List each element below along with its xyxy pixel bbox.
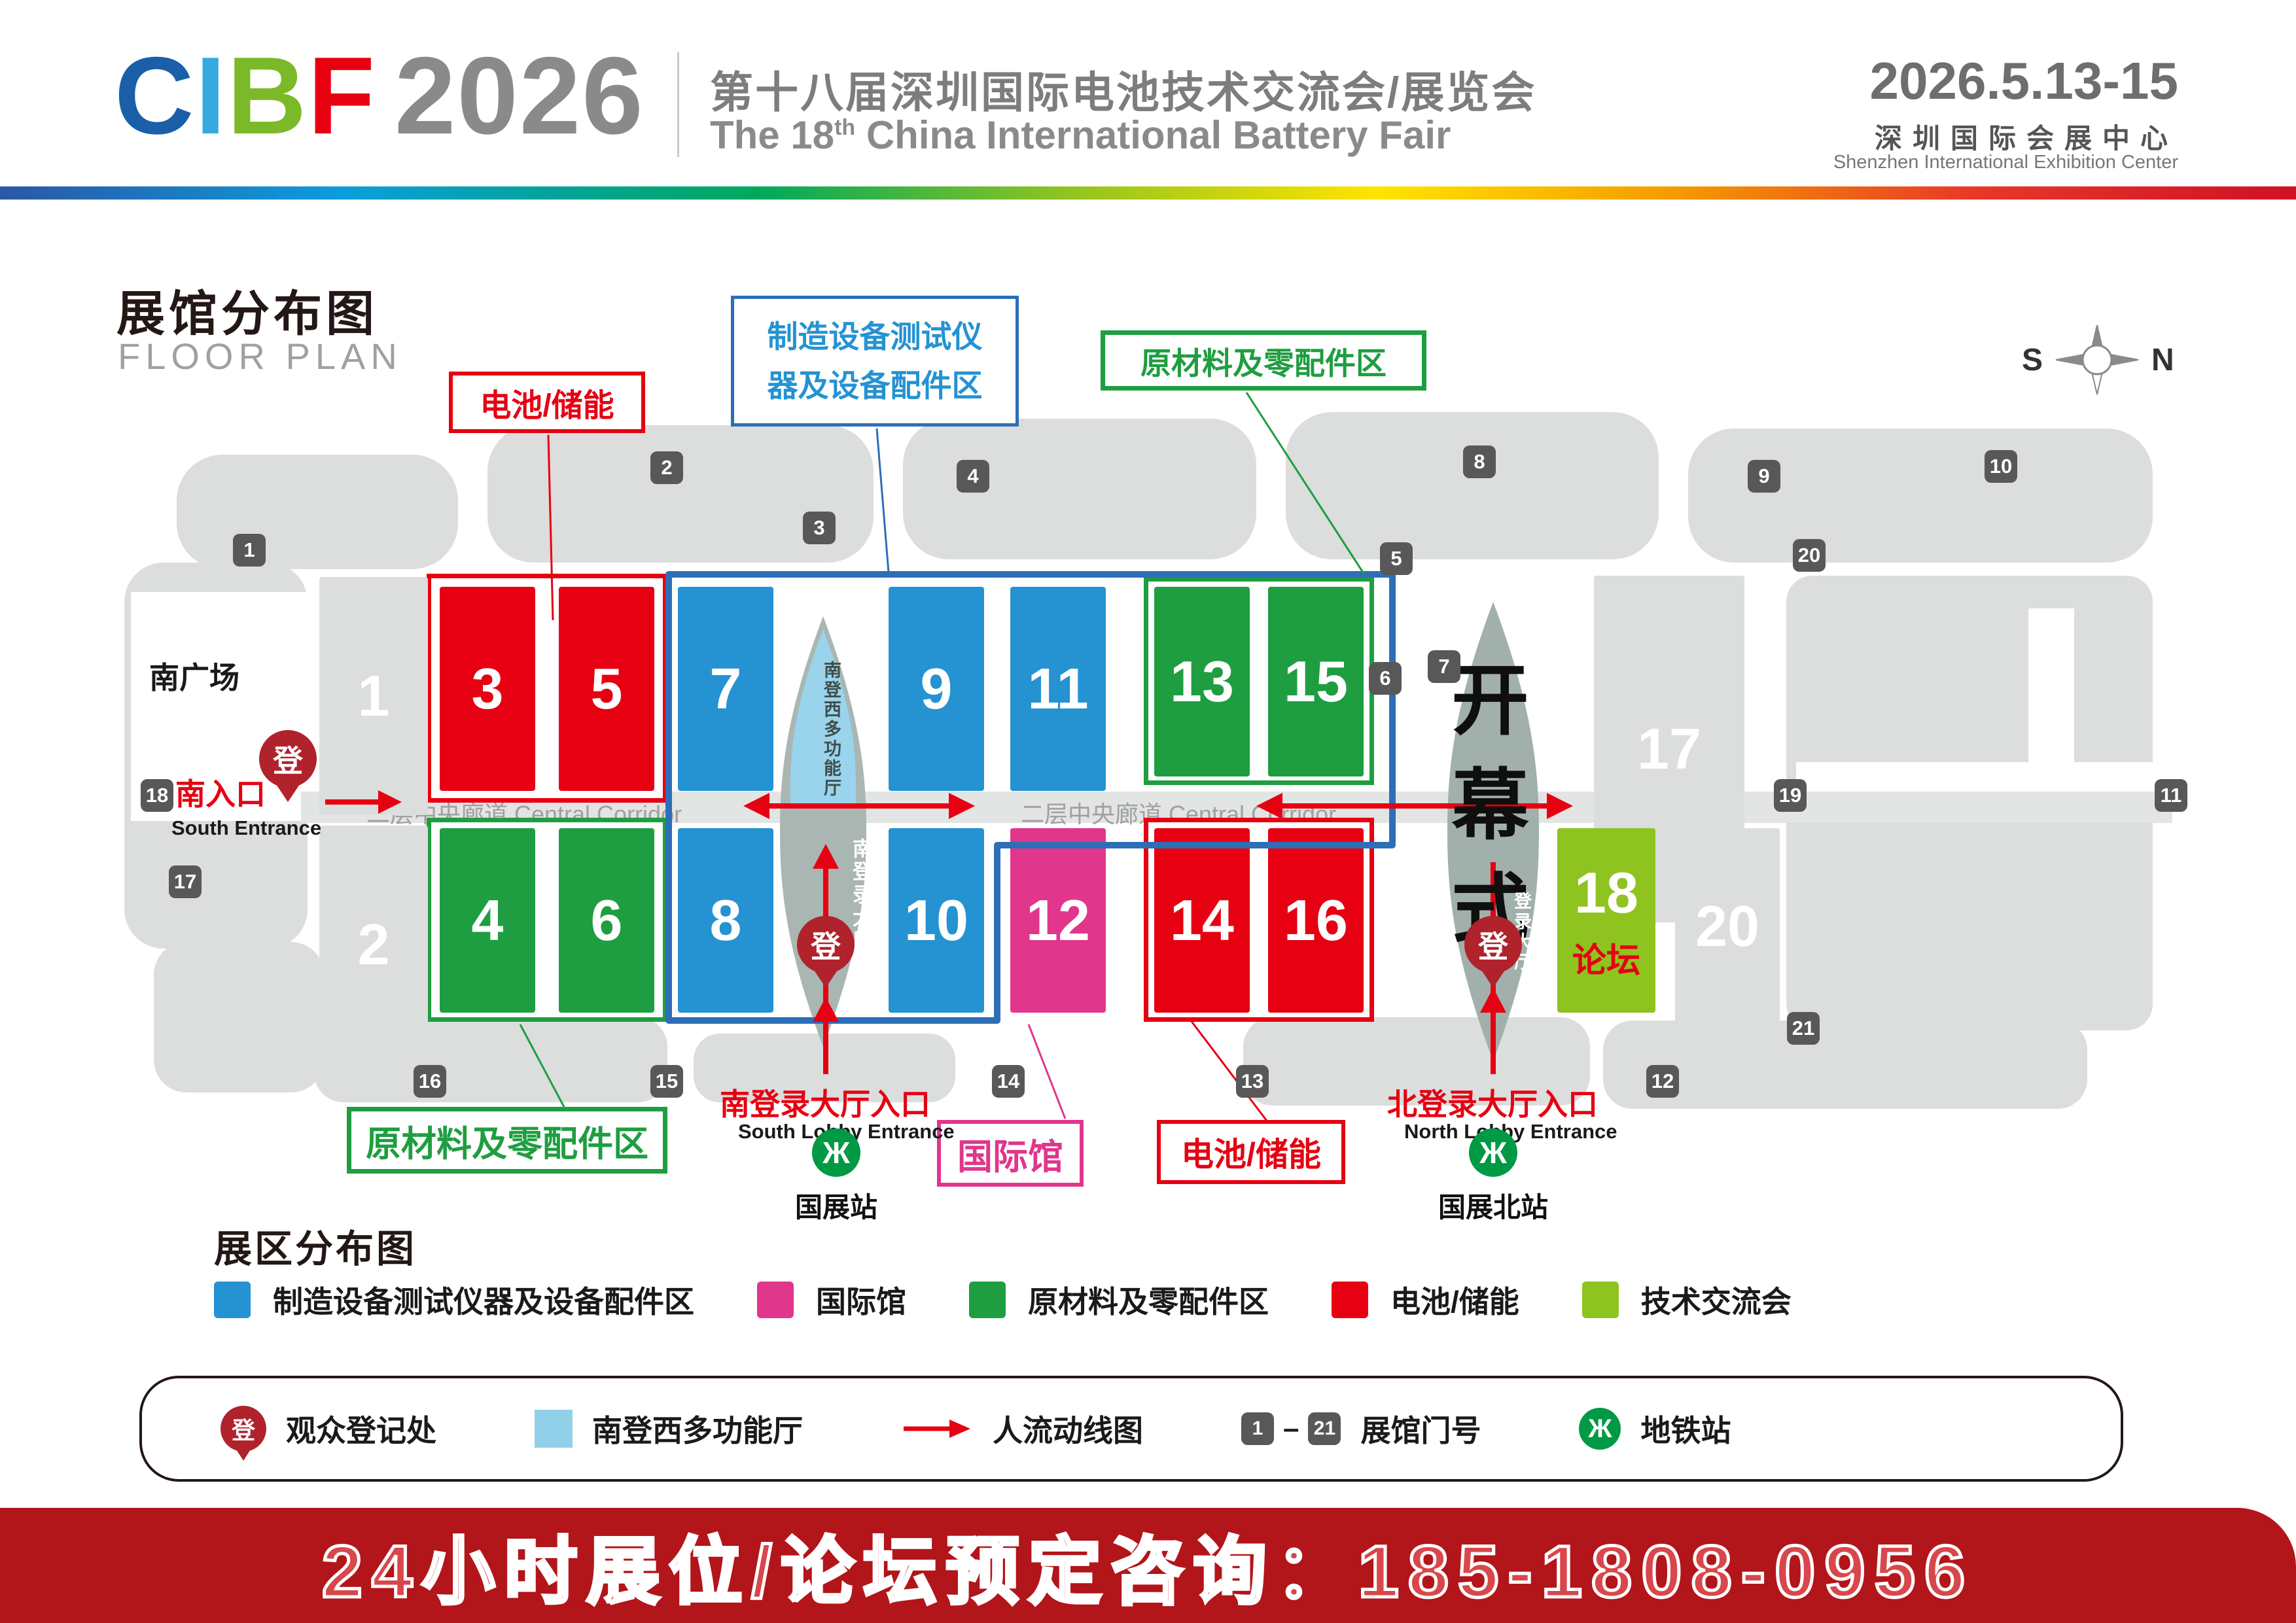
hall-20: 20: [1675, 828, 1780, 1024]
gate-5: 5: [1380, 542, 1413, 575]
hall-14: 14: [1154, 828, 1250, 1013]
hall-3-number: 3: [472, 655, 504, 722]
logo-year: 2026: [395, 34, 645, 157]
key-gate-label: 展馆门号: [1360, 1407, 1481, 1450]
key-gate-numbers: 1 – 21 展馆门号: [1241, 1407, 1481, 1450]
hall-5-number: 5: [591, 655, 623, 722]
legend-item-forum: 技术交流会: [1582, 1278, 1792, 1321]
hall-10-number: 10: [904, 887, 968, 954]
fair-title-en-sup: th: [834, 115, 855, 140]
floor-plan-title-en: FLOOR PLAN: [118, 335, 402, 377]
gate-6: 6: [1369, 662, 1402, 695]
gate-16: 16: [414, 1065, 446, 1098]
hall-14-number: 14: [1170, 887, 1234, 954]
gate-7: 7: [1428, 650, 1460, 683]
flow-arrow-icon: [901, 1416, 973, 1442]
key-registration: 登 观众登记处: [221, 1406, 436, 1452]
callout-battery-bottom-text: 电池/储能: [1181, 1128, 1321, 1176]
hall-5: 5: [559, 587, 654, 791]
hall-18-forum-label: 论坛: [1572, 933, 1640, 982]
multi-hall-swatch: [535, 1410, 573, 1448]
header-divider: [677, 52, 679, 157]
key-multi-hall: 南登西多功能厅: [535, 1407, 803, 1450]
hall-4-number: 4: [472, 887, 504, 954]
legend-item-international: 国际馆: [757, 1278, 906, 1321]
venue-name-en: Shenzhen International Exhibition Center: [1833, 152, 2178, 173]
leader-equipment: [877, 428, 889, 572]
hall-16: 16: [1268, 828, 1364, 1013]
hall-2-number: 2: [358, 911, 390, 978]
hall-17-number: 17: [1637, 716, 1701, 782]
callout-equipment-line1: 制造设备测试仪: [768, 312, 983, 361]
rainbow-divider: [0, 186, 2296, 200]
key-flow-label: 人流动线图: [993, 1407, 1143, 1450]
hall-15-number: 15: [1284, 648, 1348, 715]
cibf-logo: CIBF2026: [115, 41, 645, 150]
building-shape: [1688, 428, 2153, 563]
callout-equipment-line2: 器及设备配件区: [768, 361, 983, 410]
legend-label-equipment: 制造设备测试仪器及设备配件区: [273, 1278, 694, 1321]
venue-name-cn: 深圳国际会展中心: [1875, 116, 2178, 156]
registration-pin-text: 登: [811, 923, 841, 966]
key-registration-label: 观众登记处: [286, 1407, 436, 1450]
building-gap: [2028, 608, 2074, 765]
gate-17: 17: [169, 865, 202, 898]
hall-10: 10: [889, 828, 984, 1013]
hall-16-number: 16: [1284, 887, 1348, 954]
registration-pin-text: 登: [273, 737, 303, 780]
building-shape: [177, 455, 458, 569]
hall-2: 2: [319, 826, 428, 1064]
metro-icon-north: Ж: [1469, 1128, 1517, 1177]
registration-pin-north-lobby: 登: [1464, 916, 1522, 973]
hall-9-number: 9: [921, 655, 953, 722]
legend-label-forum: 技术交流会: [1641, 1278, 1792, 1321]
key-gate-to-badge: 21: [1308, 1412, 1341, 1445]
hall-13: 13: [1154, 587, 1250, 777]
hall-7: 7: [678, 587, 773, 791]
north-lobby-entrance-label-cn: 北登录大厅入口: [1387, 1081, 1598, 1124]
gate-9: 9: [1748, 460, 1780, 493]
gate-8: 8: [1463, 445, 1496, 478]
callout-international-text: 国际馆: [957, 1128, 1063, 1179]
hall-13-number: 13: [1170, 648, 1234, 715]
gate-14: 14: [992, 1065, 1025, 1098]
gate-1: 1: [233, 534, 266, 567]
south-multi-hall-label: 南登西多功能厅: [802, 651, 844, 808]
gate-4: 4: [957, 460, 989, 493]
fair-title-en-suffix: China International Battery Fair: [855, 113, 1451, 157]
gate-19: 19: [1774, 779, 1807, 812]
compass-north-label: N: [2151, 342, 2174, 378]
hall-1: 1: [319, 577, 428, 815]
metro-station-south-label: 国展站: [795, 1185, 877, 1225]
metro-glyph: Ж: [822, 1135, 850, 1170]
hall-20-number: 20: [1695, 893, 1759, 960]
hall-4: 4: [440, 828, 535, 1013]
callout-materials-bottom-text: 原材料及零配件区: [366, 1115, 648, 1166]
legend-row: 制造设备测试仪器及设备配件区 国际馆 原材料及零配件区 电池/储能 技术交流会: [214, 1277, 2111, 1323]
hall-12-number: 12: [1026, 887, 1090, 954]
hall-7-number: 7: [710, 655, 742, 722]
hall-1-number: 1: [358, 663, 390, 729]
legend-label-materials: 原材料及零配件区: [1028, 1278, 1269, 1321]
building-shape: [903, 419, 1256, 559]
logo-letter-i: I: [195, 34, 227, 157]
legend-swatch-equipment: [214, 1282, 251, 1318]
metro-icon-south: Ж: [812, 1128, 860, 1177]
legend-item-battery: 电池/储能: [1332, 1278, 1519, 1321]
legend-swatch-battery: [1332, 1282, 1368, 1318]
legend-item-materials: 原材料及零配件区: [969, 1278, 1269, 1321]
key-gate-from-badge: 1: [1241, 1412, 1274, 1445]
gate-11: 11: [2155, 779, 2187, 812]
registration-pin-south-entrance: 登: [259, 730, 317, 788]
hall-6: 6: [559, 828, 654, 1013]
callout-battery-top-text: 电池/储能: [480, 379, 614, 425]
event-dates: 2026.5.13-15: [1869, 51, 2178, 111]
registration-pin-south-lobby: 登: [797, 916, 855, 973]
hall-11-number: 11: [1027, 655, 1088, 722]
callout-battery-top: 电池/储能: [449, 372, 645, 433]
hall-11: 11: [1010, 587, 1106, 791]
building-shape: [1286, 412, 1659, 559]
compass-star-icon: [2055, 324, 2140, 396]
callout-materials-bottom: 原材料及零配件区: [347, 1107, 667, 1174]
building-shape: [154, 942, 324, 1092]
legend-swatch-materials: [969, 1282, 1006, 1318]
callout-battery-bottom: 电池/储能: [1157, 1120, 1345, 1184]
key-metro-label: 地铁站: [1640, 1407, 1731, 1450]
gate-12: 12: [1646, 1065, 1679, 1098]
legend-label-battery: 电池/储能: [1390, 1278, 1519, 1321]
fair-title-en: The 18th China International Battery Fai…: [710, 113, 1451, 158]
callout-international: 国际馆: [937, 1120, 1084, 1187]
legend-item-equipment: 制造设备测试仪器及设备配件区: [214, 1278, 694, 1321]
registration-pin-glyph: 登: [232, 1412, 255, 1446]
hotline-text: 24小时展位/论坛预定咨询：185-1808-0956: [322, 1512, 1974, 1618]
hall-6-number: 6: [591, 887, 623, 954]
registration-pin-icon: 登: [221, 1406, 266, 1452]
key-gate-dash: –: [1283, 1412, 1299, 1445]
hall-18: 18论坛: [1557, 828, 1655, 1013]
floor-plan-title-cn: 展馆分布图: [116, 275, 378, 345]
callout-materials-top-text: 原材料及零配件区: [1140, 338, 1386, 383]
south-plaza-label: 南广场: [149, 654, 239, 697]
metro-icon-key: Ж: [1579, 1408, 1621, 1450]
legend-title: 展区分布图: [214, 1218, 417, 1273]
south-entrance-label-cn: 南入口: [175, 771, 266, 814]
gate-18: 18: [141, 779, 173, 812]
gate-20: 20: [1793, 539, 1826, 572]
registration-pin-text: 登: [1478, 923, 1508, 966]
compass: S N: [2022, 324, 2218, 396]
gate-15: 15: [650, 1065, 683, 1098]
logo-letter-b: B: [227, 34, 308, 157]
gate-21: 21: [1787, 1012, 1820, 1045]
key-metro: Ж 地铁站: [1579, 1407, 1731, 1450]
gate-2: 2: [650, 451, 683, 484]
leader-international: [1029, 1024, 1065, 1119]
map-key-bar: 登 观众登记处 南登西多功能厅 人流动线图 1 – 21 展馆门号 Ж 地铁站: [139, 1376, 2123, 1482]
callout-equipment: 制造设备测试仪 器及设备配件区: [731, 296, 1019, 427]
south-entrance-label-en: South Entrance: [171, 816, 321, 840]
metro-glyph: Ж: [1588, 1414, 1612, 1444]
gate-13: 13: [1236, 1065, 1269, 1098]
gate-3: 3: [803, 512, 836, 544]
metro-station-north-label: 国展北站: [1438, 1185, 1548, 1225]
hall-18-number: 18: [1574, 860, 1638, 926]
legend-swatch-international: [757, 1282, 794, 1318]
hall-3: 3: [440, 587, 535, 791]
logo-letter-f: F: [308, 34, 376, 157]
gate-10: 10: [1985, 450, 2017, 483]
legend-swatch-forum: [1582, 1282, 1619, 1318]
key-flow: 人流动线图: [901, 1407, 1143, 1450]
logo-letter-c: C: [115, 34, 195, 157]
hall-15: 15: [1268, 587, 1364, 777]
hotline-banner: 24小时展位/论坛预定咨询：185-1808-0956: [0, 1508, 2296, 1623]
hall-12: 12: [1010, 828, 1106, 1013]
south-lobby-entrance-label-cn: 南登录大厅入口: [720, 1081, 930, 1124]
fair-title-cn: 第十八届深圳国际电池技术交流会/展览会: [710, 58, 1536, 120]
hall-9: 9: [889, 587, 984, 791]
legend-label-international: 国际馆: [816, 1278, 906, 1321]
compass-south-label: S: [2022, 342, 2043, 378]
metro-glyph: Ж: [1479, 1135, 1507, 1170]
fair-title-en-prefix: The 18: [710, 113, 834, 157]
hall-8: 8: [678, 828, 773, 1013]
callout-materials-top: 原材料及零配件区: [1101, 330, 1426, 391]
hall-8-number: 8: [710, 887, 742, 954]
key-multi-hall-label: 南登西多功能厅: [592, 1407, 803, 1450]
